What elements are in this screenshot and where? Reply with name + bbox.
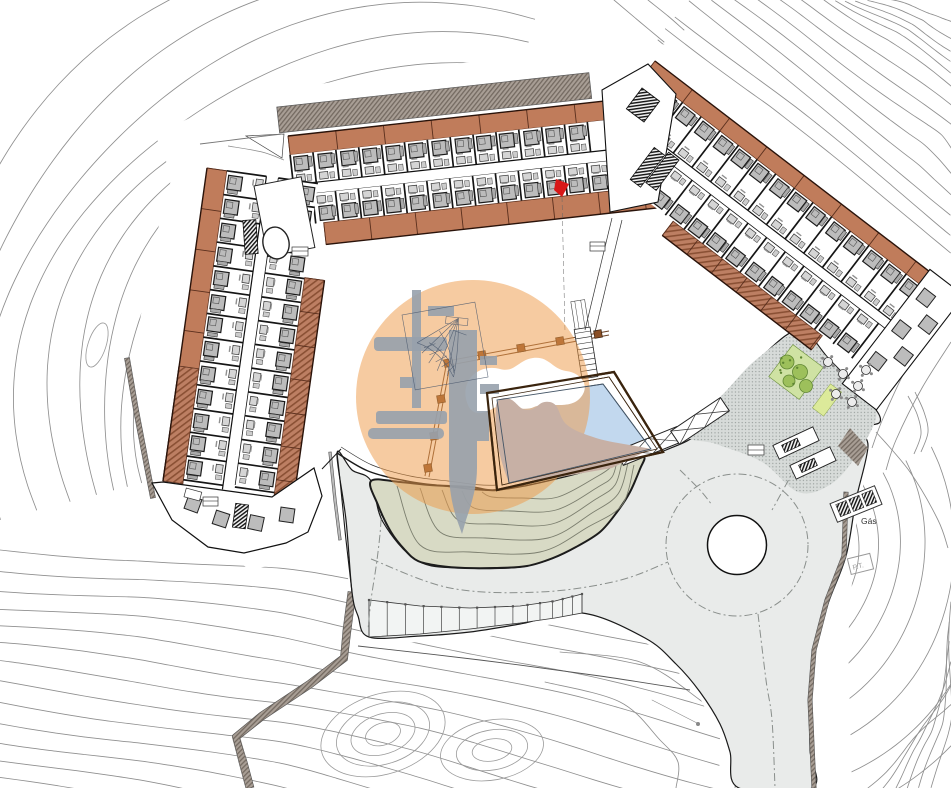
svg-text:Gás: Gás (861, 516, 877, 526)
